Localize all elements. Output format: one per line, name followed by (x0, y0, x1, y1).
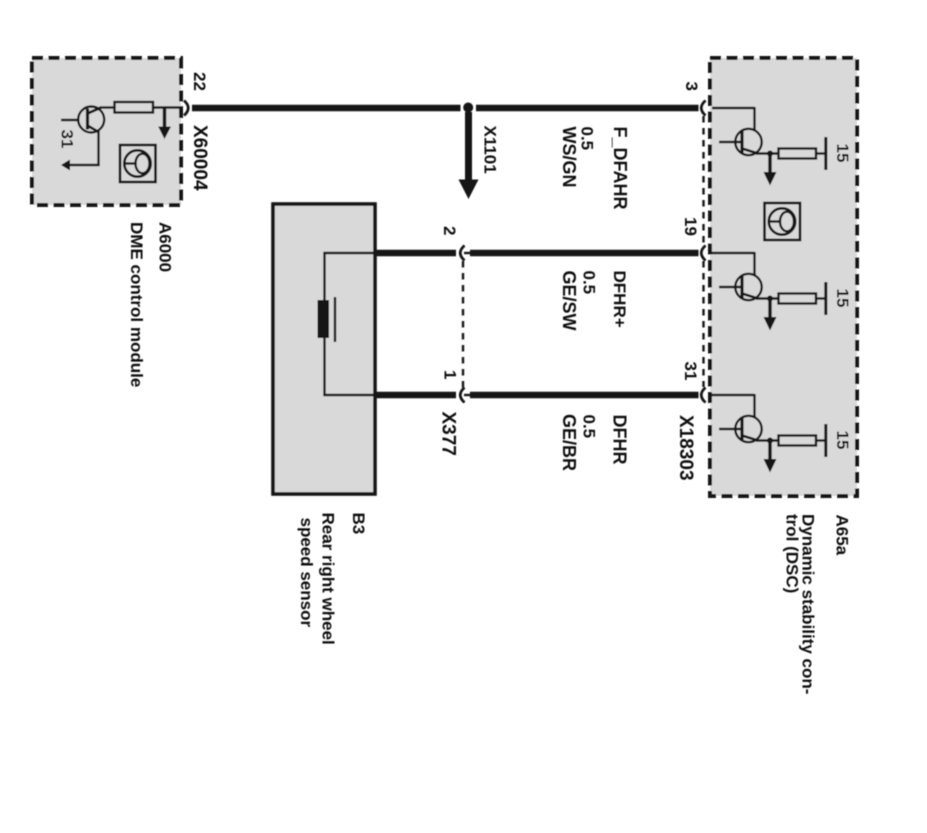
svg-text:0.5: 0.5 (580, 271, 599, 295)
svg-text:2: 2 (440, 226, 459, 235)
svg-text:31: 31 (681, 362, 700, 381)
svg-text:1: 1 (441, 370, 460, 379)
svg-text:DME control module: DME control module (127, 222, 146, 387)
svg-text:A6000: A6000 (156, 222, 175, 272)
svg-text:DFHR: DFHR (610, 415, 630, 465)
svg-text:Rear right wheel: Rear right wheel (319, 513, 338, 645)
svg-text:0.5: 0.5 (578, 127, 597, 151)
svg-text:F_DFAHR: F_DFAHR (610, 127, 630, 210)
svg-text:DFHR+: DFHR+ (610, 271, 629, 328)
svg-text:WS/GN: WS/GN (559, 127, 579, 188)
svg-text:X377: X377 (438, 412, 459, 456)
svg-text:19: 19 (681, 217, 700, 236)
svg-text:0.5: 0.5 (580, 415, 599, 439)
svg-text:X18303: X18303 (675, 415, 696, 481)
svg-text:B3: B3 (349, 513, 368, 535)
svg-text:22: 22 (190, 72, 209, 91)
svg-text:X60004: X60004 (189, 125, 210, 191)
svg-text:speed sensor: speed sensor (297, 518, 316, 628)
svg-text:3: 3 (682, 82, 701, 91)
svg-text:trol (DSC): trol (DSC) (783, 514, 802, 593)
svg-text:X1101: X1101 (481, 126, 500, 174)
svg-text:GE/SW: GE/SW (559, 271, 579, 331)
svg-text:A65a: A65a (833, 515, 852, 556)
svg-text:GE/BR: GE/BR (559, 414, 579, 471)
svg-text:31: 31 (58, 130, 77, 149)
